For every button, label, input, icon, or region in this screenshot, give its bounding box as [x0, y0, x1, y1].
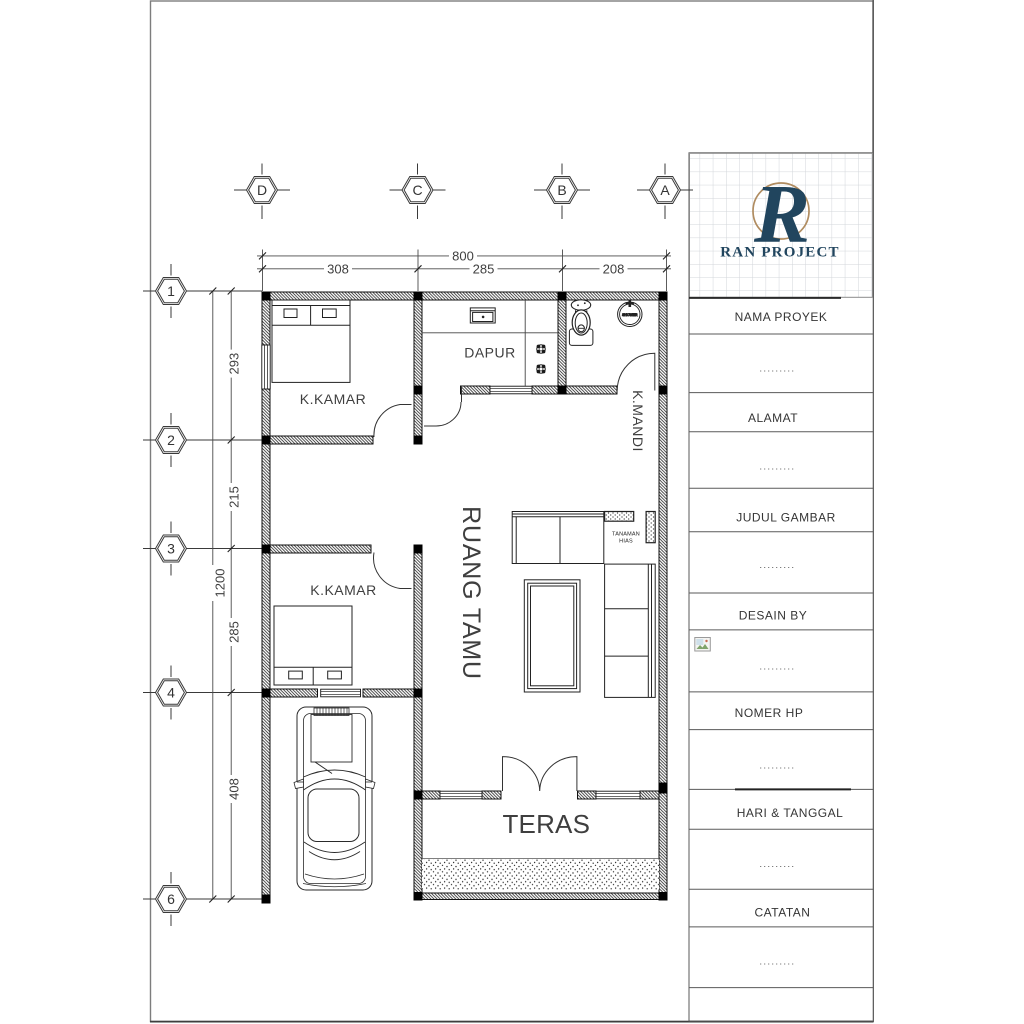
svg-text:.........: .........: [759, 761, 795, 771]
svg-text:285: 285: [227, 621, 242, 643]
svg-text:D: D: [257, 182, 267, 198]
svg-text:K.MANDI: K.MANDI: [630, 390, 646, 452]
svg-text:1200: 1200: [213, 569, 228, 598]
svg-text:408: 408: [227, 778, 242, 800]
svg-text:DAPUR: DAPUR: [464, 345, 516, 361]
svg-text:3: 3: [167, 541, 175, 557]
svg-text:K.KAMAR: K.KAMAR: [310, 582, 377, 598]
svg-text:308: 308: [327, 261, 349, 276]
svg-text:RAN PROJECT: RAN PROJECT: [720, 245, 839, 261]
svg-text:.........: .........: [759, 364, 795, 374]
svg-text:NAMA PROYEK: NAMA PROYEK: [735, 310, 828, 324]
svg-text:208: 208: [603, 261, 625, 276]
svg-text:.........: .........: [759, 560, 795, 570]
svg-text:K.KAMAR: K.KAMAR: [300, 391, 367, 407]
svg-text:285: 285: [473, 261, 495, 276]
svg-text:TERAS: TERAS: [502, 809, 590, 839]
svg-text:HIAS: HIAS: [619, 539, 633, 545]
svg-text:A: A: [660, 182, 670, 198]
svg-text:800: 800: [452, 249, 474, 264]
svg-text:2: 2: [167, 432, 175, 448]
svg-text:.........: .........: [759, 662, 795, 672]
svg-text:1: 1: [167, 283, 175, 299]
svg-text:.........: .........: [759, 957, 795, 967]
svg-text:HARI & TANGGAL: HARI & TANGGAL: [737, 806, 844, 820]
svg-text:SHOWER: SHOWER: [622, 313, 638, 317]
svg-text:C: C: [412, 182, 422, 198]
svg-text:RUANG TAMU: RUANG TAMU: [457, 506, 485, 680]
svg-text:B: B: [557, 182, 566, 198]
svg-text:ALAMAT: ALAMAT: [748, 411, 798, 425]
svg-text:293: 293: [227, 353, 242, 375]
svg-text:JUDUL GAMBAR: JUDUL GAMBAR: [736, 511, 836, 525]
svg-text:NOMER HP: NOMER HP: [735, 706, 804, 720]
svg-text:.........: .........: [759, 859, 795, 869]
svg-text:DESAIN BY: DESAIN BY: [739, 609, 808, 623]
svg-text:6: 6: [167, 891, 175, 907]
svg-text:.........: .........: [759, 462, 795, 472]
svg-text:4: 4: [167, 685, 175, 701]
svg-text:CATATAN: CATATAN: [755, 906, 811, 920]
svg-text:TANAMAN: TANAMAN: [612, 531, 640, 537]
svg-text:215: 215: [227, 486, 242, 508]
